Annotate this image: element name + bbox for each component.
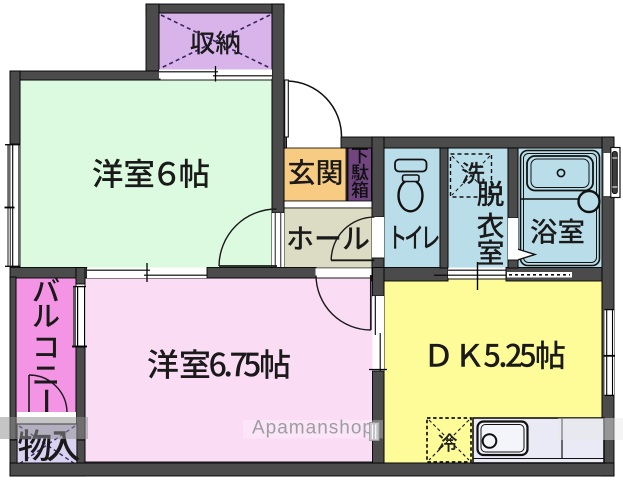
svg-text:Apamanshop: Apamanshop (252, 418, 374, 439)
